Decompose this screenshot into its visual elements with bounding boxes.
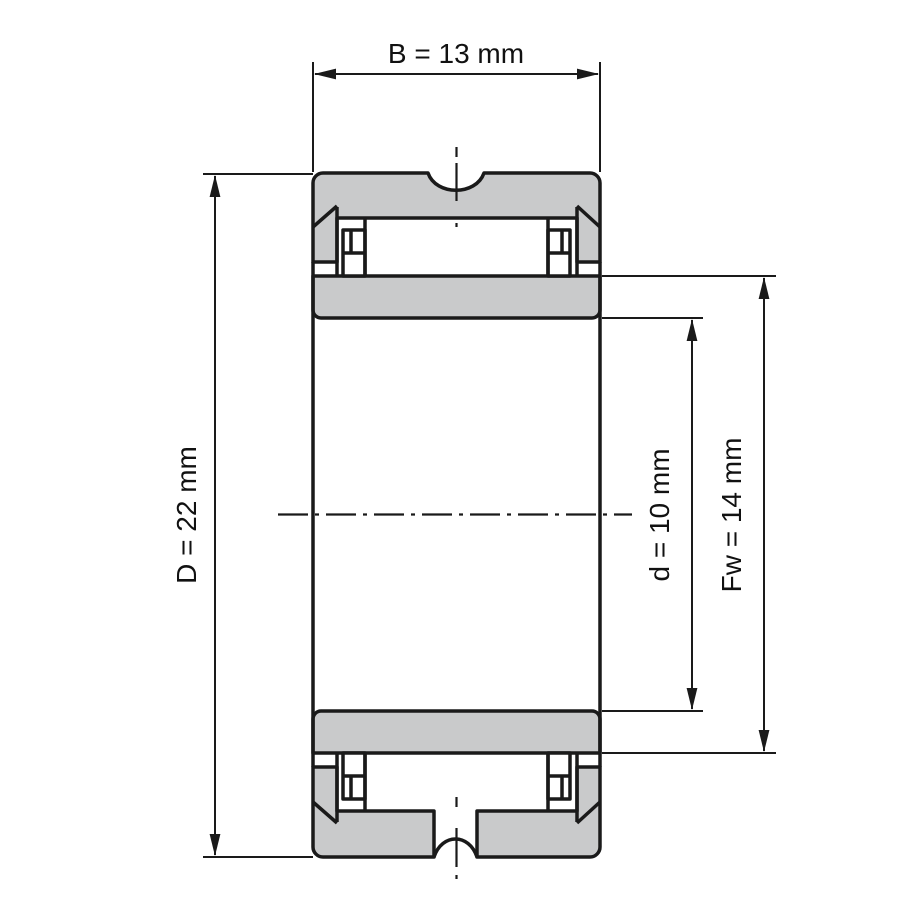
outer-ring-bottom-right-body — [477, 767, 600, 857]
dimension-label-B: B = 13 mm — [388, 38, 524, 69]
dimension-label-d: d = 10 mm — [644, 448, 675, 581]
cage-detail-lines-bottom — [343, 776, 570, 799]
dimension-D-arrow-bottom — [210, 834, 221, 856]
inner-ring-top-section — [313, 276, 600, 318]
drawing-canvas: B = 13 mm D = 22 mm d = 10 mm Fw = 14 mm — [0, 0, 900, 900]
dimension-label-D: D = 22 mm — [171, 446, 202, 584]
dimension-d-arrow-top — [687, 319, 698, 341]
dimension-B-arrow-right — [577, 69, 599, 80]
dimension-label-Fw: Fw = 14 mm — [716, 438, 747, 593]
dimension-Fw-arrow-top — [759, 277, 770, 299]
inner-ring-top-body — [313, 276, 600, 318]
dimension-d-arrow-bottom — [687, 688, 698, 710]
bearing-technical-drawing: B = 13 mm D = 22 mm d = 10 mm Fw = 14 mm — [0, 0, 900, 900]
dimension-B-arrow-left — [314, 69, 336, 80]
dimension-Fw-arrow-bottom — [759, 730, 770, 752]
inner-ring-bottom-section — [313, 711, 600, 753]
outer-ring-bottom-left-body — [313, 767, 434, 857]
cage-detail-lines-top — [343, 230, 570, 253]
inner-ring-bottom-body — [313, 711, 600, 753]
dimension-D-arrow-top — [210, 175, 221, 197]
